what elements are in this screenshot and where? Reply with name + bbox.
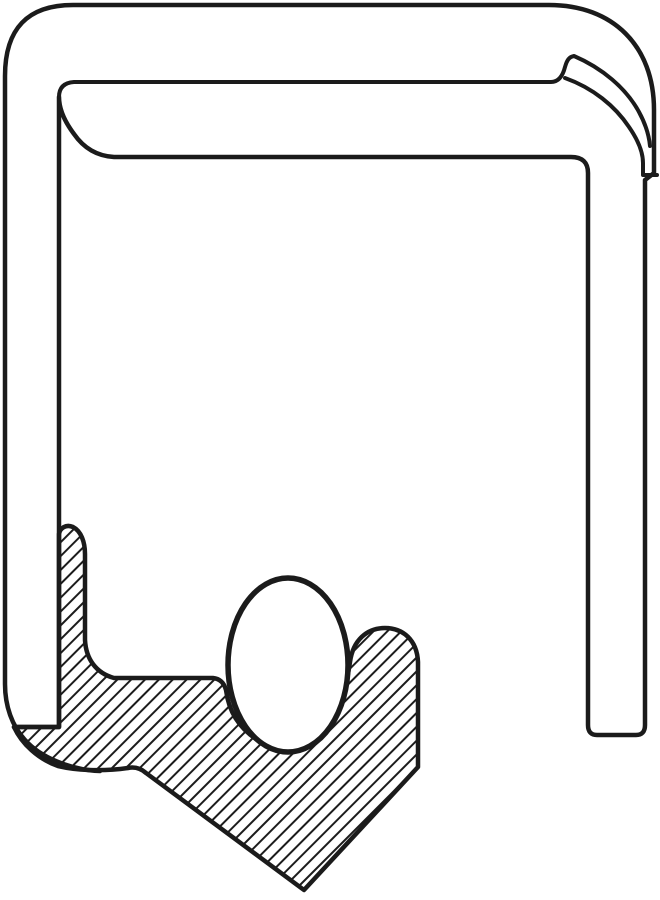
garter-spring <box>228 578 348 752</box>
drawing-canvas <box>0 0 660 900</box>
rubber-seal-body <box>14 526 418 890</box>
oil-seal-cross-section-drawing <box>0 0 660 900</box>
case-lip-upper-contour <box>59 56 650 146</box>
